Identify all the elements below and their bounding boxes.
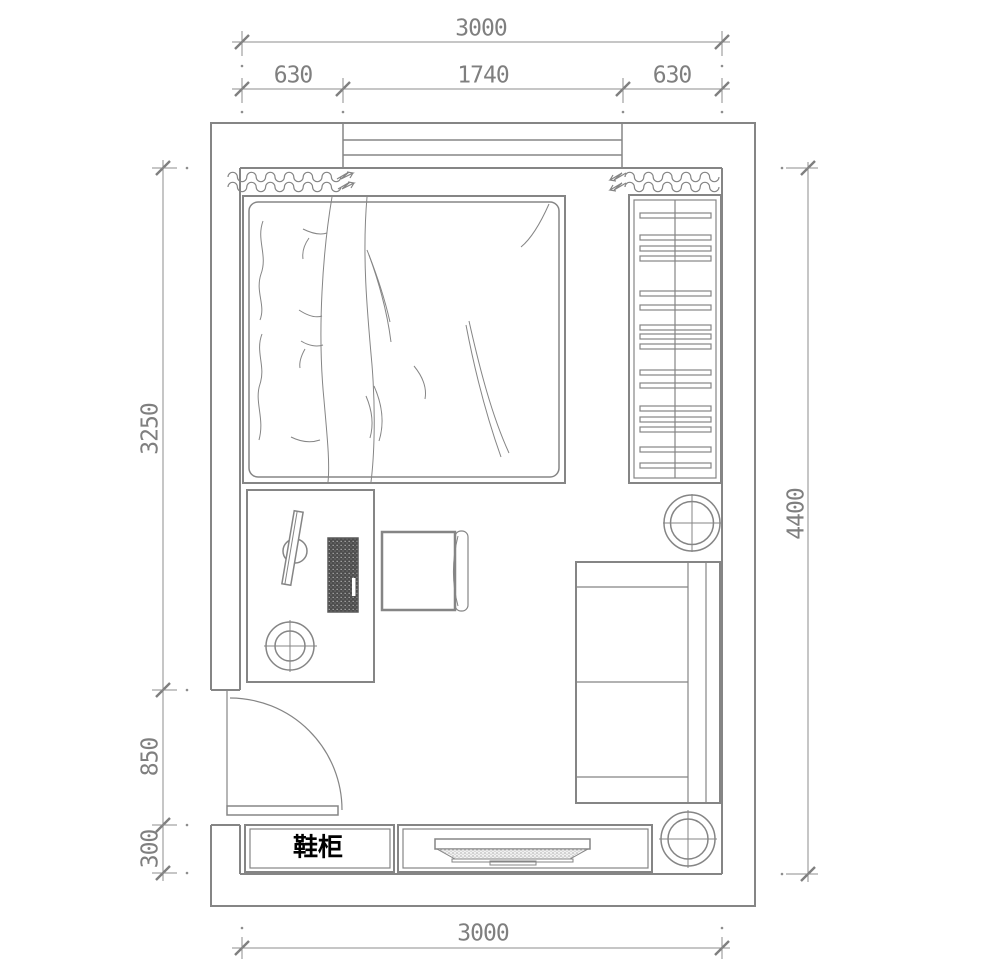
wardrobe — [629, 195, 721, 483]
curtain-break-arrow — [610, 173, 626, 181]
dim-label-top-seg-3: 630 — [653, 65, 692, 88]
chair-seat — [382, 532, 455, 610]
desk — [247, 490, 374, 682]
chair — [382, 531, 468, 611]
dim-label-right-total: 4400 — [786, 488, 809, 539]
shoe-cabinet-label: 鞋柜 — [293, 835, 343, 860]
chair-backrest — [455, 531, 468, 611]
dim-label-left-seg-3: 300 — [140, 830, 163, 869]
keyboard-trackpad — [352, 578, 356, 596]
stool — [264, 620, 317, 672]
dim-label-top-seg-2: 1740 — [457, 65, 508, 88]
dim-label-left-seg-1: 3250 — [140, 403, 163, 454]
round-table-bottom — [659, 810, 717, 868]
dim-label-bottom-total: 3000 — [457, 923, 508, 946]
bed-frame — [243, 196, 565, 483]
monitor — [282, 511, 303, 585]
curtain-break-arrow — [337, 172, 353, 179]
round-table-top — [663, 494, 721, 552]
door-swing-arc — [230, 698, 342, 810]
keyboard — [328, 538, 358, 612]
door — [227, 690, 342, 815]
blanket — [321, 197, 332, 482]
bed-mattress — [249, 202, 559, 477]
curtain-left — [228, 172, 354, 192]
floor-plan-drawing — [0, 0, 981, 960]
bed — [243, 196, 565, 483]
dim-label-top-total: 3000 — [455, 18, 506, 41]
pillow — [259, 221, 263, 320]
floor-plan: 3000 630 1740 630 3250 850 300 4400 3000… — [0, 0, 981, 960]
sofa — [576, 562, 720, 803]
dim-label-top-seg-1: 630 — [274, 65, 313, 88]
pillow — [258, 334, 262, 440]
tv-body — [437, 849, 588, 859]
door-leaf — [227, 806, 338, 815]
curtain-right — [610, 172, 719, 191]
window — [343, 123, 622, 168]
tv — [435, 839, 590, 865]
tv-screen — [435, 839, 590, 849]
dim-label-left-seg-2: 850 — [140, 738, 163, 777]
